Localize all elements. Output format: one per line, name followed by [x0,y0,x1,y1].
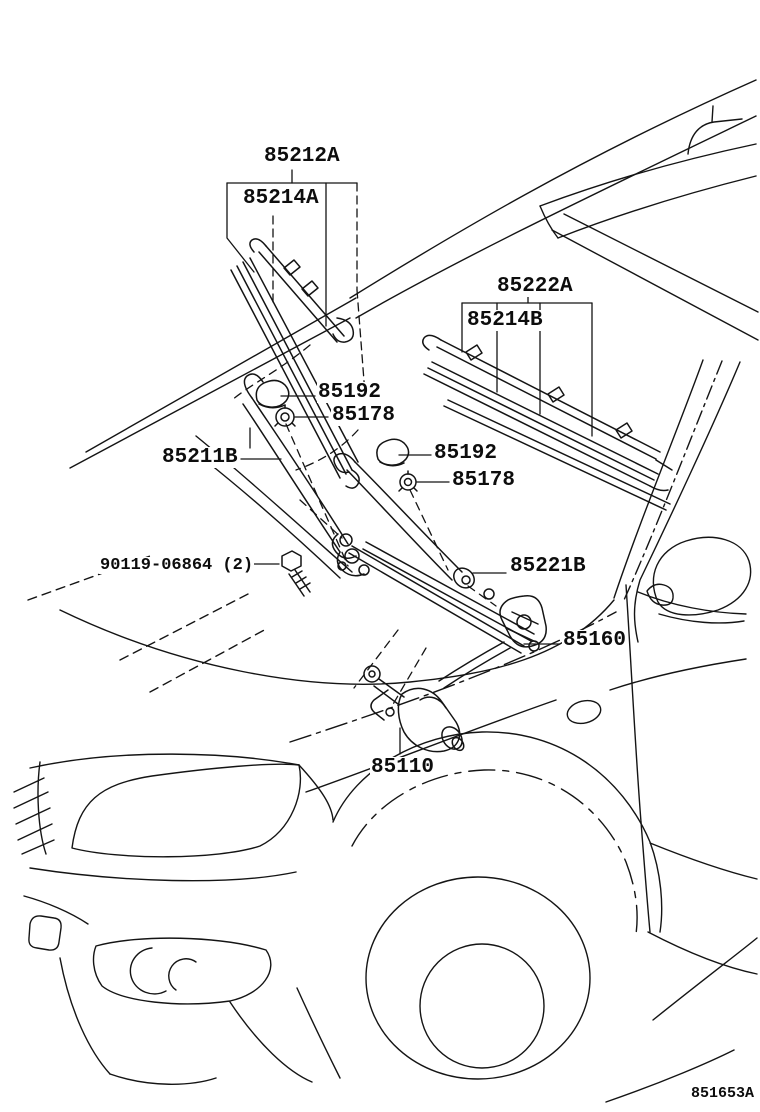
callout-cap-front[interactable]: 85192 [317,382,382,403]
wiper-motor [364,666,466,753]
callout-mount-bolt[interactable]: 90119-06864 (2) [99,557,254,574]
callout-motor[interactable]: 85110 [370,757,435,778]
callout-arm-passenger[interactable]: 85221B [509,556,587,577]
callout-blade1-rubber[interactable]: 85214A [242,188,320,209]
car-body-linework [14,80,758,1102]
callout-arm-driver[interactable]: 85211B [161,447,239,468]
wiper-blade-1 [231,239,359,488]
parts-diagram-page: 85212A 85214A 85222A 85214B 85192 85178 … [0,0,760,1112]
callout-blade2-rubber[interactable]: 85214B [466,310,544,331]
pivot-nut-front [275,405,295,426]
callout-link-assembly[interactable]: 85160 [562,630,627,651]
callout-blade1-assembly[interactable]: 85212A [263,146,341,167]
pivot-cap-rear [377,439,409,466]
callout-nut-rear[interactable]: 85178 [451,470,516,491]
callout-cap-rear[interactable]: 85192 [433,443,498,464]
callout-nut-front[interactable]: 85178 [331,405,396,426]
mounting-bolt [282,551,310,596]
pivot-cap-front [256,380,288,407]
callout-blade2-assembly[interactable]: 85222A [496,276,574,297]
figure-code: 851653A [691,1086,754,1101]
pivot-nut-rear [399,471,417,491]
